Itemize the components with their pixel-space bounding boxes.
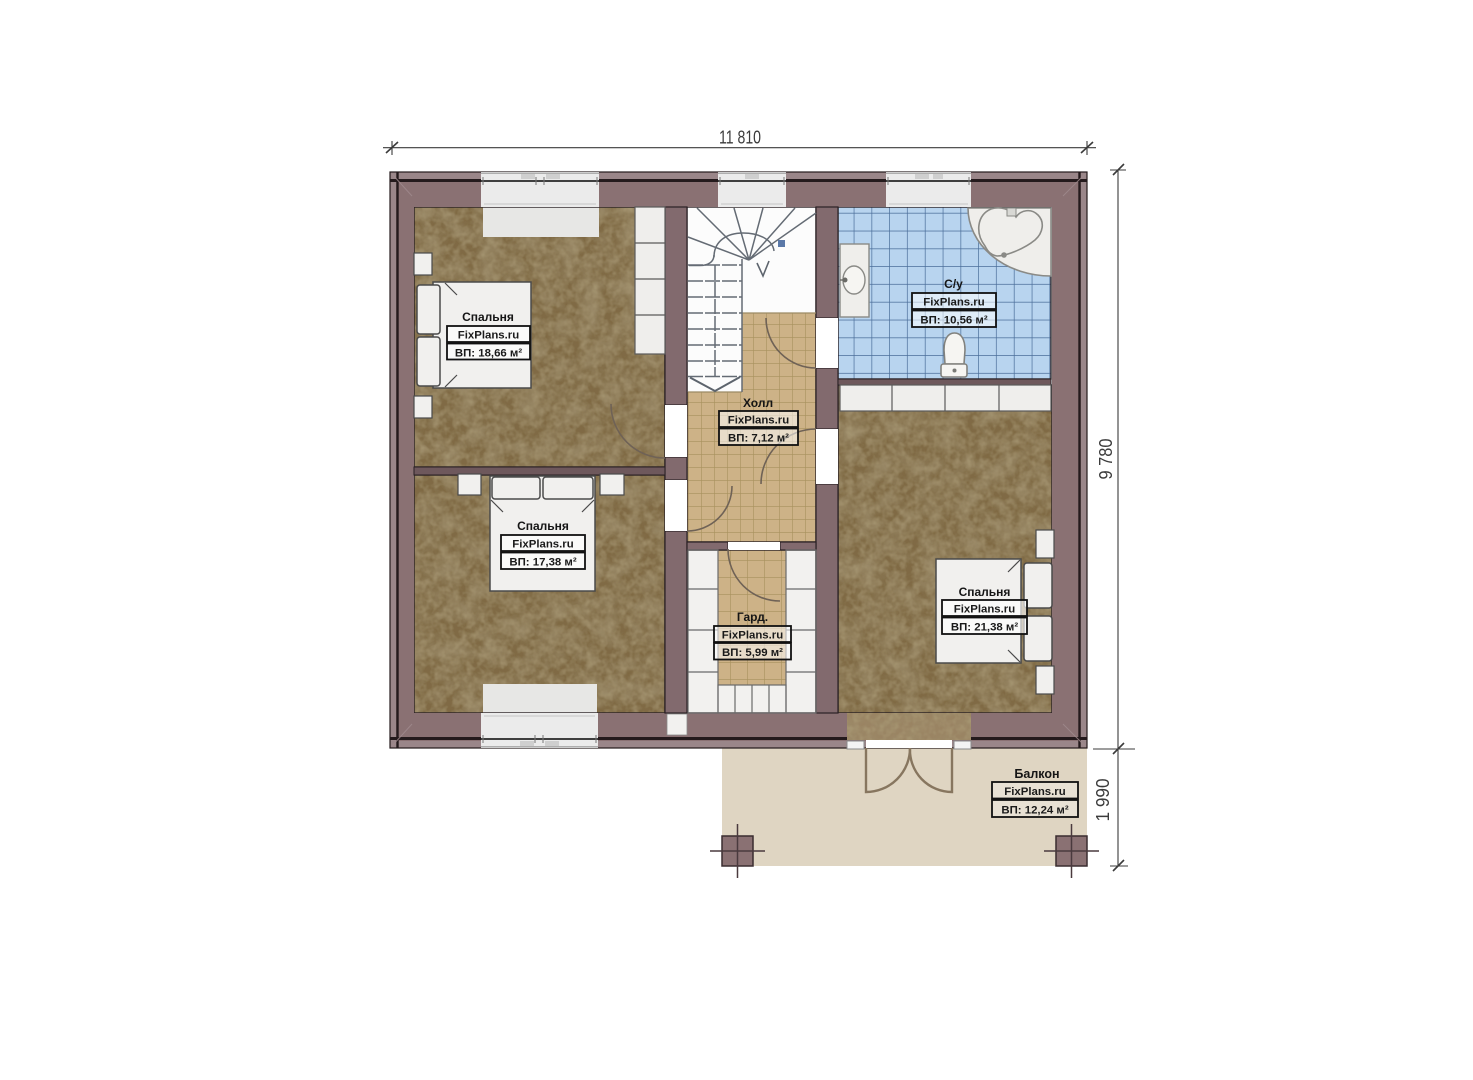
svg-text:ВП: 10,56 м²: ВП: 10,56 м² <box>920 315 987 327</box>
svg-text:Холл: Холл <box>743 396 773 410</box>
svg-text:9 780: 9 780 <box>1096 439 1116 480</box>
svg-text:ВП: 21,38 м²: ВП: 21,38 м² <box>951 622 1018 634</box>
svg-text:Гард.: Гард. <box>737 610 768 624</box>
svg-text:ВП: 12,24 м²: ВП: 12,24 м² <box>1001 805 1068 817</box>
svg-text:Спальня: Спальня <box>959 585 1011 599</box>
svg-text:FixPlans.ru: FixPlans.ru <box>458 330 519 342</box>
svg-text:С/у: С/у <box>944 277 963 291</box>
svg-text:ВП: 18,66 м²: ВП: 18,66 м² <box>455 348 522 360</box>
svg-text:11 810: 11 810 <box>719 128 761 148</box>
svg-text:FixPlans.ru: FixPlans.ru <box>1004 786 1065 798</box>
svg-text:FixPlans.ru: FixPlans.ru <box>722 630 783 642</box>
svg-text:FixPlans.ru: FixPlans.ru <box>512 539 573 551</box>
svg-text:FixPlans.ru: FixPlans.ru <box>954 604 1015 616</box>
svg-text:Балкон: Балкон <box>1014 767 1059 781</box>
svg-text:FixPlans.ru: FixPlans.ru <box>728 415 789 427</box>
svg-text:ВП: 17,38 м²: ВП: 17,38 м² <box>509 557 576 569</box>
svg-text:Спальня: Спальня <box>462 310 514 324</box>
svg-text:FixPlans.ru: FixPlans.ru <box>923 297 984 309</box>
svg-text:Спальня: Спальня <box>517 519 569 533</box>
svg-text:ВП: 7,12 м²: ВП: 7,12 м² <box>728 433 789 445</box>
svg-text:1 990: 1 990 <box>1093 779 1113 822</box>
svg-text:ВП: 5,99 м²: ВП: 5,99 м² <box>722 647 783 659</box>
